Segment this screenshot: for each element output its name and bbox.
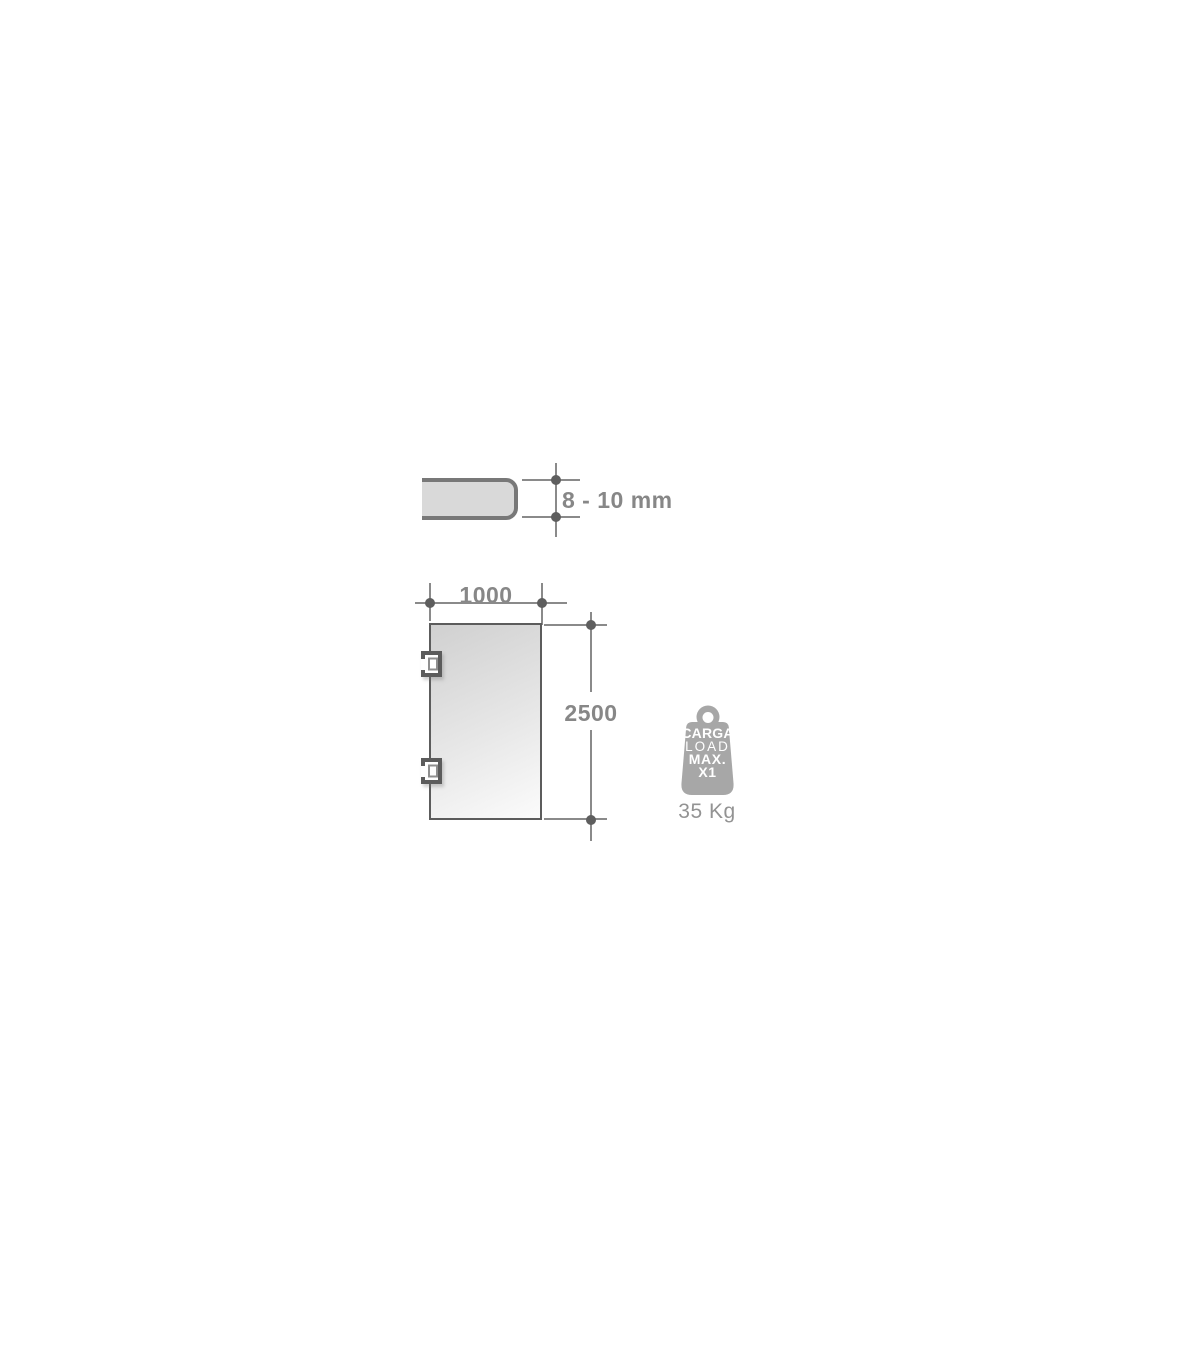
dimension-dot <box>586 815 596 825</box>
door-height-label: 2500 <box>551 700 631 726</box>
door-width-label: 1000 <box>430 582 542 608</box>
spec-diagram-canvas: 8 - 10 mm 1000 2500 <box>0 0 1200 1372</box>
badge-text-x1: X1 <box>681 766 734 779</box>
hinge-bottom <box>421 758 442 784</box>
dimension-dot <box>551 512 561 522</box>
dimension-dot <box>551 475 561 485</box>
height-extension-line-bottom <box>544 818 607 820</box>
dimension-dot <box>586 620 596 630</box>
dimension-dot <box>537 598 547 608</box>
max-weight-value: 35 Kg <box>667 800 747 824</box>
hinge-top <box>421 651 442 677</box>
hinge-clamp-plate <box>428 658 438 671</box>
dimension-dot <box>425 598 435 608</box>
hinge-notch <box>421 766 425 777</box>
height-extension-line-top <box>544 624 607 626</box>
thickness-label: 8 - 10 mm <box>562 487 673 513</box>
hinge-clamp-plate <box>428 765 438 778</box>
max-load-weight-icon: CARGA LOAD MAX. X1 <box>681 705 734 795</box>
hinge-notch <box>421 659 425 670</box>
glass-door-panel <box>429 623 542 820</box>
glass-panel-cross-section <box>422 478 518 520</box>
